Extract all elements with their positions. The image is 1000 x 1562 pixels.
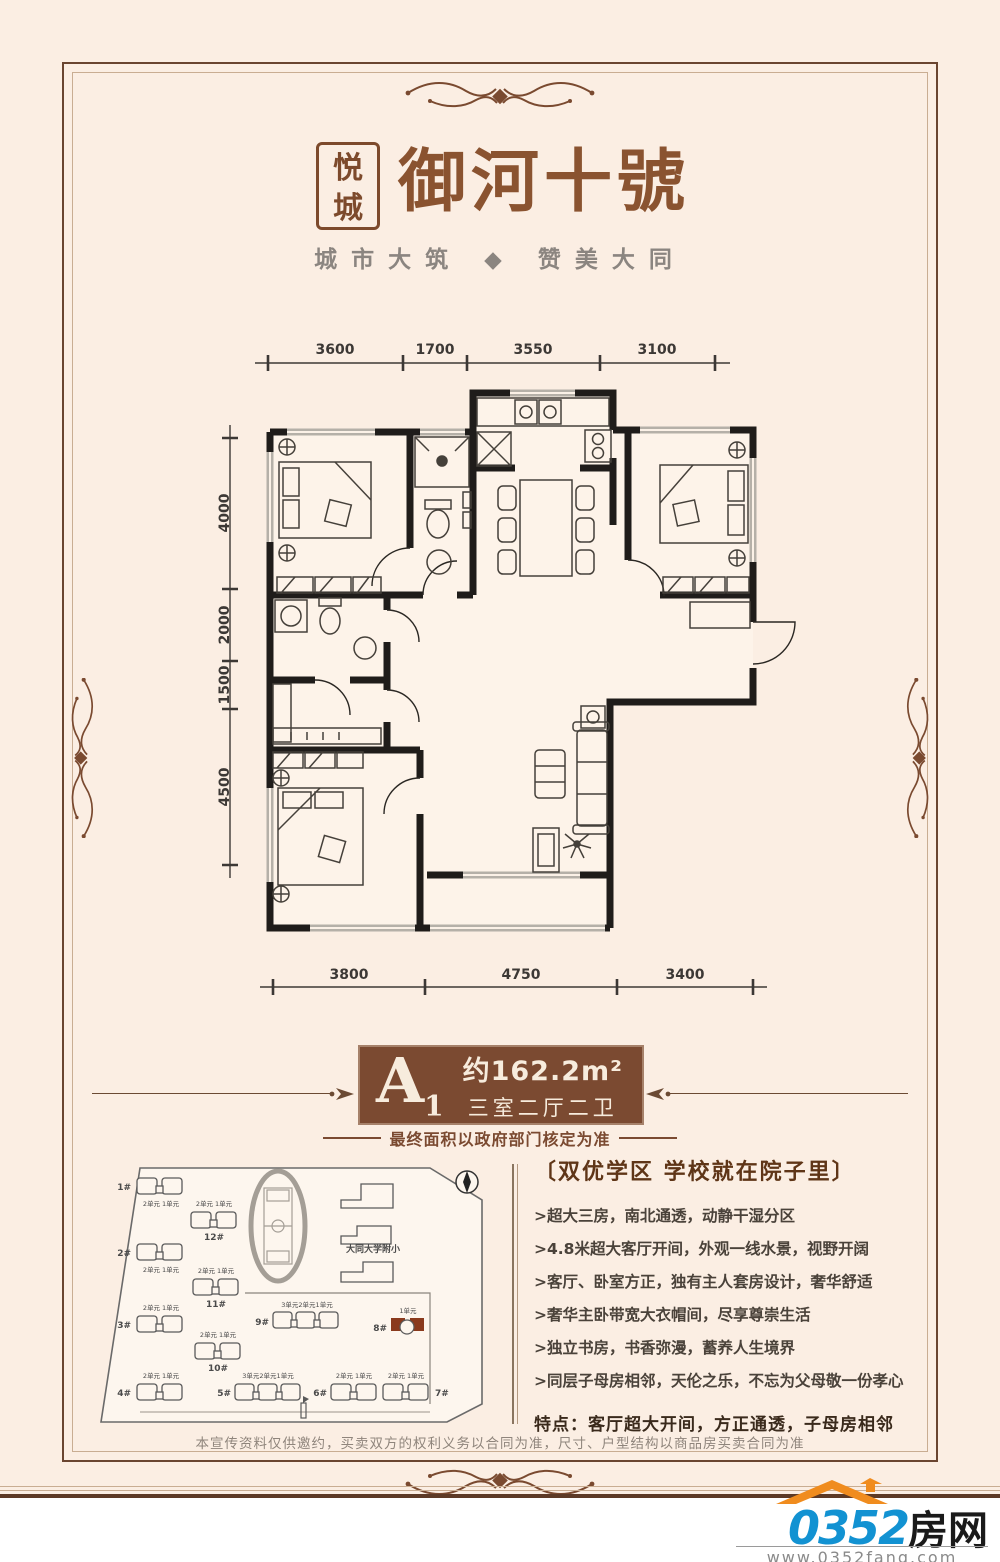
unit-rooms: 三室二厅二卫	[468, 1092, 618, 1122]
disclaimer: 本宣传资料仅供邀约，买卖双方的权利义务以合同为准，尺寸、户型结构以商品房买卖合同…	[0, 1432, 1000, 1452]
badge-left-rule	[92, 1086, 348, 1102]
unit-index: 1	[424, 1089, 443, 1122]
dim-bottom-3: 3400	[666, 967, 705, 983]
dim-bottom-1: 3800	[330, 967, 369, 983]
unit-badge: A1 约162.2m² 三室二厅二卫	[358, 1045, 644, 1125]
project-title: 御河十號	[398, 126, 690, 225]
dim-left-1: 4000	[217, 493, 233, 532]
floorplan-floor	[270, 393, 753, 928]
bldg-label-6: 6#	[313, 1389, 327, 1399]
bldg-label-4: 4#	[117, 1389, 131, 1399]
dim-top-3: 3550	[514, 342, 553, 358]
brand-logo[interactable]: 0352房网 www.0352fang.com	[688, 1478, 988, 1562]
bldg-label-9: 9#	[255, 1318, 269, 1328]
school-label: 大同大学附小	[346, 1243, 400, 1255]
bldg-label-2: 2#	[117, 1249, 131, 1259]
badge-right-rule	[652, 1086, 908, 1102]
bldg-label-5: 5#	[217, 1389, 231, 1399]
units-6: 2单元 1单元	[336, 1371, 373, 1380]
units-3: 2单元 1单元	[143, 1303, 180, 1312]
features-header: 〔双优学区 学校就在院子里〕	[534, 1154, 934, 1186]
floorplan-diagram: 3600 1700 3550 3100 4000 2000 1500 4500 …	[215, 330, 805, 1005]
feature-bullet-5: >独立书房，书香弥漫，蓄养人生境界	[534, 1332, 934, 1365]
note-right-rule	[619, 1137, 677, 1139]
dim-top-1: 3600	[316, 342, 355, 358]
dim-left-3: 1500	[217, 665, 233, 704]
compass-icon	[456, 1171, 478, 1193]
brand-url[interactable]: www.0352fang.com	[736, 1546, 988, 1562]
feature-bullet-1: >超大三房，南北通透，动静干湿分区	[534, 1200, 934, 1233]
units-7: 2单元 1单元	[388, 1371, 425, 1380]
units-9: 3单元2单元1单元	[281, 1300, 333, 1309]
units-10: 2单元 1单元	[200, 1330, 237, 1339]
features-panel: 〔双优学区 学校就在院子里〕 >超大三房，南北通透，动静干湿分区 >4.8米超大…	[534, 1154, 934, 1435]
area-note: 最终面积以政府部门核定为准	[0, 1126, 1000, 1150]
bldg-label-11: 11#	[206, 1300, 226, 1310]
dim-top-4: 3100	[638, 342, 677, 358]
unit-letter: A1	[358, 1050, 452, 1120]
bldg-label-3: 3#	[117, 1321, 131, 1331]
units-2: 2单元 1单元	[143, 1265, 180, 1274]
units-11: 2单元 1单元	[198, 1266, 235, 1275]
feature-bullet-6: >同层子母房相邻，天伦之乐，不忘为父母敬一份孝心	[534, 1365, 934, 1398]
note-text: 最终面积以政府部门核定为准	[389, 1126, 610, 1150]
badge-left-arrow-icon	[328, 1086, 354, 1102]
dim-bottom-2: 4750	[502, 967, 541, 983]
bldg-label-10: 10#	[208, 1364, 228, 1374]
brand-seal: 悦 城	[316, 142, 380, 230]
unit-area: 约162.2m²	[463, 1049, 623, 1088]
feature-bullet-3: >客厅、卧室方正，独有主人套房设计，奢华舒适	[534, 1266, 934, 1299]
project-slogan: 城市大筑 ◆ 赞美大同	[0, 240, 1000, 274]
seal-char-2: 城	[319, 189, 377, 229]
bldg-label-7: 7#	[435, 1389, 449, 1399]
feature-bullet-4: >奢华主卧带宽大衣帽间，尽享尊崇生活	[534, 1299, 934, 1332]
bldg-label-1: 1#	[117, 1183, 131, 1193]
seal-char-1: 悦	[319, 149, 377, 189]
bldg-label-8: 8#	[373, 1324, 387, 1334]
right-flourish-icon	[900, 678, 936, 838]
top-flourish-icon	[390, 73, 610, 117]
poster: /* rotate the side flourishes */ svg[dat…	[0, 0, 1000, 1562]
section-divider	[512, 1164, 518, 1424]
units-5: 3单元2单元1单元	[242, 1371, 294, 1380]
dim-left-2: 2000	[217, 605, 233, 644]
units-12: 2单元 1单元	[196, 1199, 233, 1208]
left-flourish-icon	[64, 678, 100, 838]
note-left-rule	[323, 1137, 381, 1139]
dim-top-2: 1700	[416, 342, 455, 358]
bldg-label-12: 12#	[204, 1233, 224, 1243]
units-8: 1单元	[399, 1306, 417, 1315]
units-1: 2单元 1单元	[143, 1199, 180, 1208]
feature-bullet-2: >4.8米超大客厅开间，外观一线水景，视野开阔	[534, 1233, 934, 1266]
units-4: 2单元 1单元	[143, 1371, 180, 1380]
dim-left-4: 4500	[217, 767, 233, 806]
sitemap-diagram: 大同大学附小 1# 2# 3# 4# 5# 6# 7#	[85, 1160, 495, 1448]
badge-right-arrow-icon	[646, 1086, 672, 1102]
